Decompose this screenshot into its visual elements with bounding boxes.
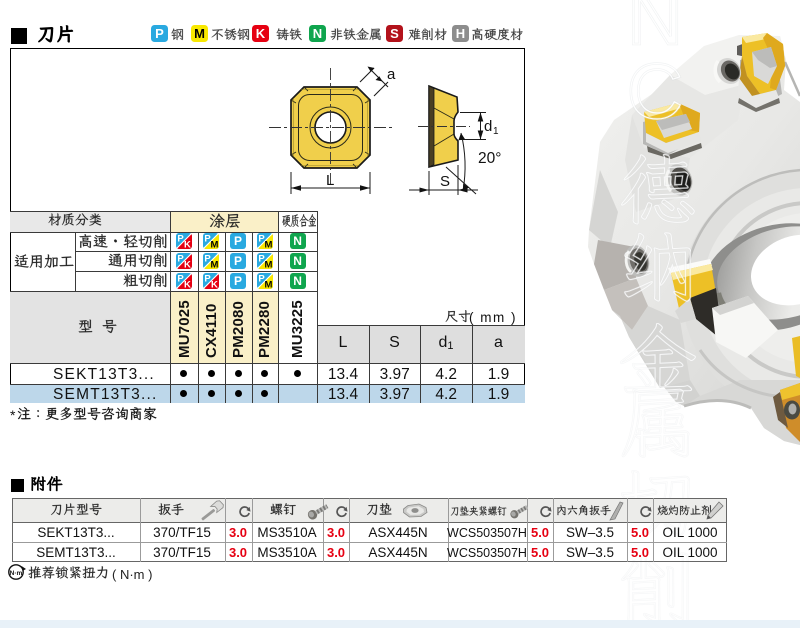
svg-text:K: K bbox=[184, 240, 191, 249]
svg-text:K: K bbox=[184, 260, 191, 269]
svg-text:M: M bbox=[264, 260, 272, 269]
svg-text:K: K bbox=[184, 279, 191, 288]
svg-text:M: M bbox=[210, 260, 218, 269]
svg-text:N·m: N·m bbox=[10, 570, 23, 577]
svg-text:S: S bbox=[440, 173, 450, 190]
svg-text:M: M bbox=[264, 279, 272, 288]
svg-text:L: L bbox=[326, 172, 334, 189]
svg-text:20°: 20° bbox=[478, 150, 501, 167]
svg-text:1: 1 bbox=[493, 126, 499, 137]
svg-text:K: K bbox=[211, 279, 218, 288]
svg-text:d: d bbox=[484, 118, 492, 135]
svg-text:a: a bbox=[387, 66, 396, 83]
svg-text:M: M bbox=[210, 240, 218, 249]
svg-text:M: M bbox=[264, 240, 272, 249]
